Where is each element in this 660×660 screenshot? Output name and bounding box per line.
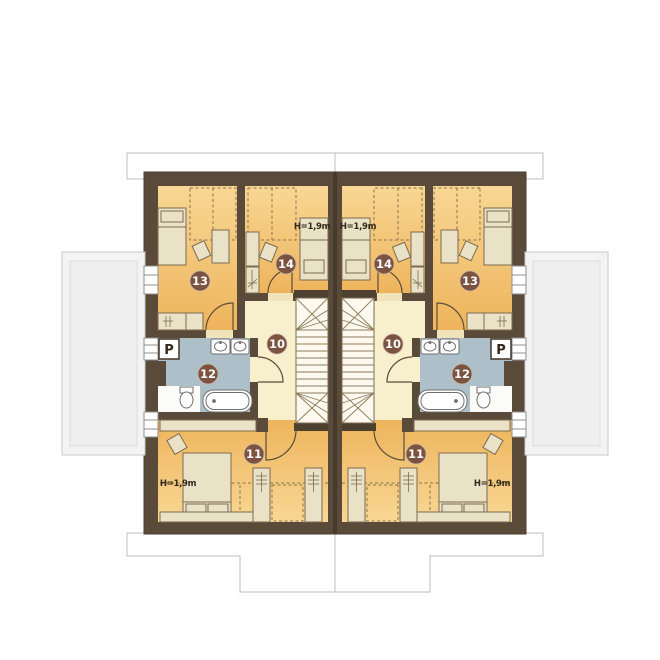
door-opening-room13: [206, 330, 233, 338]
stair-lintel-top: [294, 290, 328, 298]
svg-text:13: 13: [462, 274, 478, 288]
parapet-label-left: P: [164, 343, 174, 358]
stairs: [296, 298, 328, 423]
wardrobe: [158, 313, 203, 330]
window: [144, 338, 158, 360]
height-label-bottom-left: H=1,9m: [160, 479, 197, 489]
lower-floor-outline-bottom: [127, 533, 543, 592]
window: [144, 412, 158, 437]
room-badge-14-left: 14: [276, 254, 296, 274]
unit-right: [342, 186, 608, 522]
svg-text:12: 12: [200, 367, 216, 381]
sideboard: [160, 420, 256, 431]
svg-text:11: 11: [408, 447, 424, 461]
room-badge-11-left: 11: [244, 444, 264, 464]
sink: [231, 339, 249, 354]
sideboard: [160, 512, 256, 522]
svg-text:14: 14: [376, 257, 392, 271]
desk: [212, 230, 229, 263]
svg-text:10: 10: [385, 337, 401, 351]
floor-plan-canvas: 13 14 10 12 11 13 14 10 12 11 H=1,9m H=1…: [0, 0, 660, 660]
room-badge-12-right: 12: [452, 364, 472, 384]
room-badge-10-left: 10: [267, 334, 287, 354]
side-roof-plane: [62, 252, 145, 455]
room-badge-10-right: 10: [383, 334, 403, 354]
parapet-label-right: P: [496, 343, 506, 358]
unit-left: [62, 186, 328, 522]
wardrobe: [253, 468, 270, 522]
sink: [211, 339, 230, 354]
desk: [246, 232, 259, 266]
svg-text:14: 14: [278, 257, 294, 271]
window: [144, 266, 158, 294]
room-badge-14-right: 14: [374, 254, 394, 274]
room-badge-11-right: 11: [406, 444, 426, 464]
svg-text:10: 10: [269, 337, 285, 351]
height-label-top-right: H=1,9m: [340, 222, 377, 232]
svg-text:11: 11: [246, 447, 262, 461]
room-badge-12-left: 12: [198, 364, 218, 384]
stair-lintel-bottom: [294, 423, 328, 431]
bed-single: [158, 208, 186, 265]
toilet: [180, 387, 193, 408]
door-opening-room14: [268, 293, 293, 301]
bathroom-wall-pier: [158, 361, 166, 386]
door-opening-bathroom: [250, 357, 258, 382]
room-badge-13-left: 13: [190, 271, 210, 291]
wardrobe: [305, 468, 322, 522]
room-badge-13-right: 13: [460, 271, 480, 291]
party-wall-seam: [333, 172, 337, 534]
bathtub: [203, 390, 252, 412]
bathroom-shower-niche: [158, 386, 200, 412]
height-label-bottom-right: H=1,9m: [474, 479, 511, 489]
floor-plan: 13 14 10 12 11 13 14 10 12 11 H=1,9m H=1…: [0, 0, 660, 660]
washbasin-cabinet: [246, 267, 259, 293]
wall-stub: [256, 418, 268, 432]
svg-text:12: 12: [454, 367, 470, 381]
svg-text:13: 13: [192, 274, 208, 288]
height-label-top-left: H=1,9m: [294, 222, 331, 232]
